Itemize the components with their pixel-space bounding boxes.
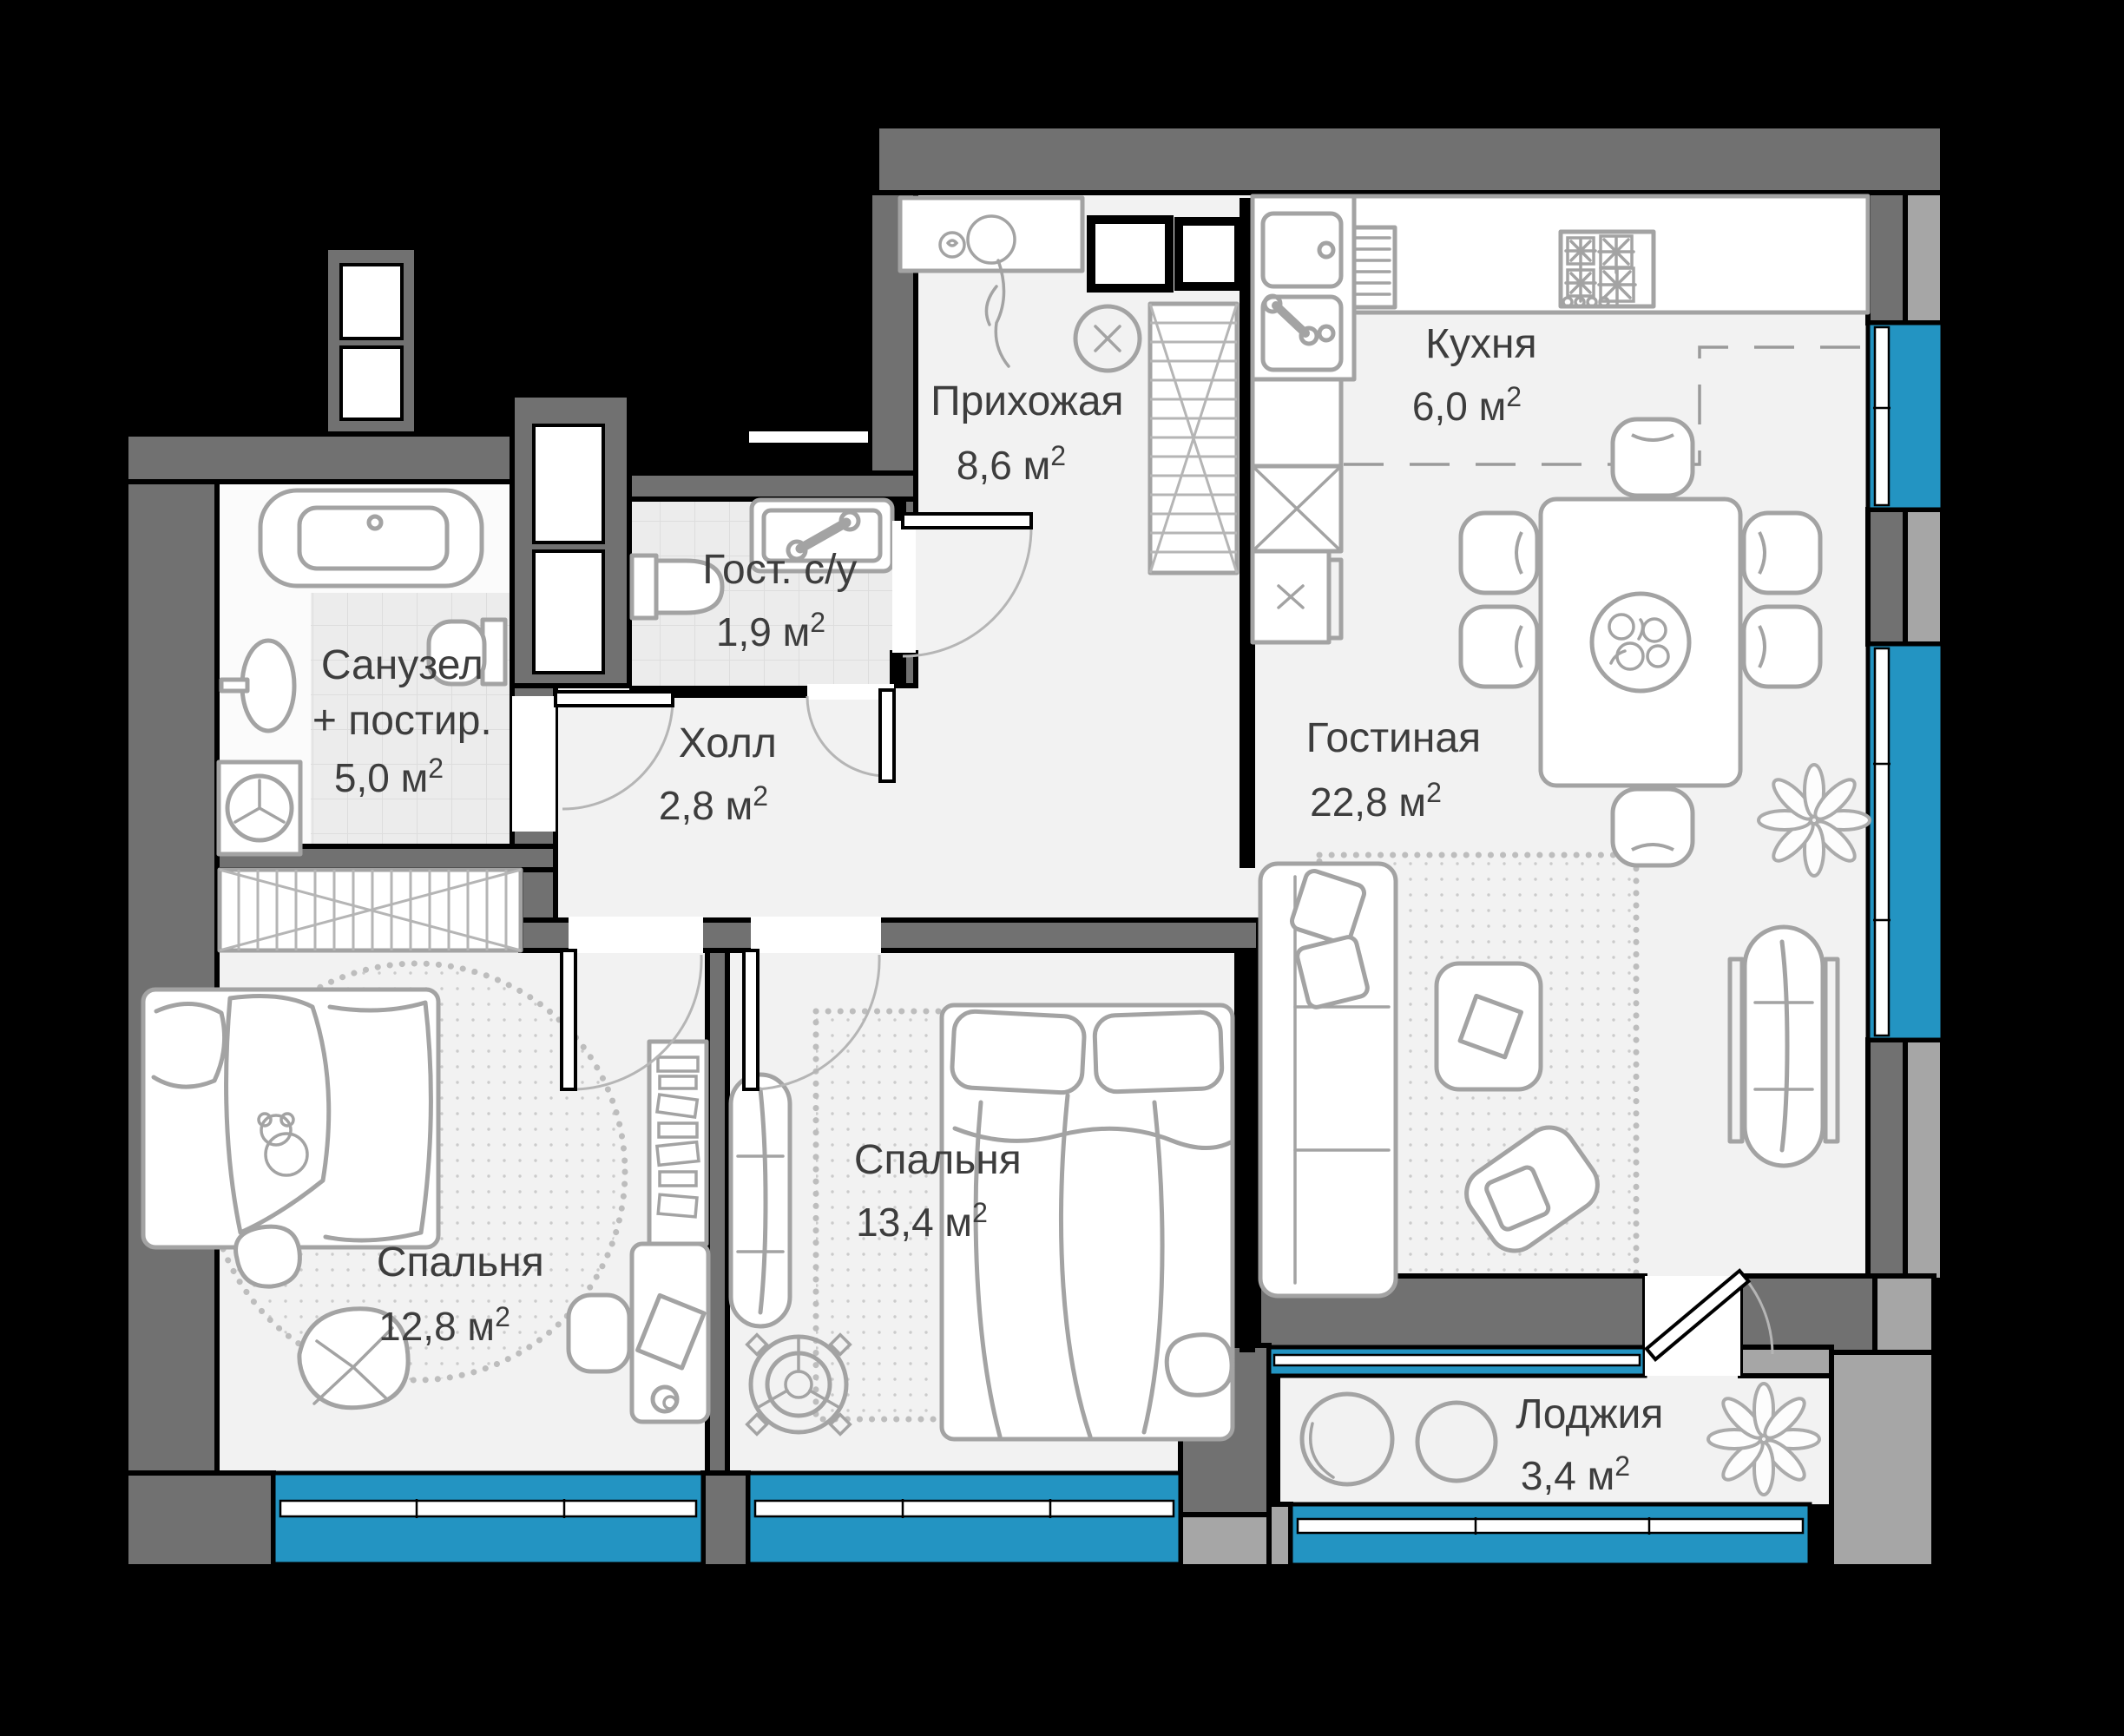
treadmill-icon (1730, 927, 1838, 1166)
bedroom-left-door-leaf (562, 950, 575, 1089)
entrance-door-leaf (903, 514, 1031, 528)
wall-top (877, 126, 1943, 193)
pouf-icon (1167, 1335, 1232, 1396)
wall-guest-wc-top (629, 473, 916, 499)
wall-bedroom-living (1240, 950, 1255, 1352)
entry-console (900, 198, 1082, 271)
bed-single (143, 990, 438, 1247)
fridge-icon (1253, 466, 1341, 551)
bedroom-middle-door-leaf (744, 950, 758, 1089)
bedroom-left-opening (569, 917, 703, 953)
stove-icon (1561, 232, 1654, 306)
pouf-icon (236, 1226, 300, 1286)
cabinet-box (1179, 221, 1239, 286)
kitchen-tall-cabinets (1253, 379, 1341, 642)
window-bedroom-middle (748, 1473, 1180, 1564)
bathroom-door-leaf (556, 692, 673, 706)
wall-left (126, 434, 217, 1473)
corridor-door-mark (749, 431, 868, 443)
dining-chair (1461, 607, 1537, 687)
entrance-opening (892, 521, 916, 653)
bookshelf (649, 1042, 707, 1244)
bathtub-icon (260, 490, 482, 586)
dining-chair (1461, 513, 1537, 593)
floor-plan-canvas: Прихожая 8,6 м2 Кухня 6,0 м2 Гост. с/у 1… (0, 0, 2124, 1736)
desk (632, 1244, 708, 1422)
wall-pier-bedrooms (703, 1473, 748, 1567)
coffee-table (1437, 963, 1541, 1089)
hallway-closet (1150, 304, 1237, 573)
bathroom-opening (512, 696, 556, 832)
guest-wc-door-leaf (880, 690, 894, 781)
dining-chair (1613, 789, 1693, 865)
washing-machine-icon (219, 762, 300, 854)
kitchen-sink-icon (1253, 196, 1354, 379)
window-loggia-bottom (1291, 1504, 1810, 1565)
desk-chair (569, 1295, 629, 1371)
wall-bathroom-top (126, 434, 512, 482)
cabinet-box (1091, 220, 1169, 288)
dining-chair (1613, 419, 1693, 496)
bedroom-left-wardrobe (220, 870, 521, 950)
floor-plan: Прихожая 8,6 м2 Кухня 6,0 м2 Гост. с/у 1… (0, 0, 2124, 1736)
window-bedroom-left (273, 1473, 703, 1564)
exercise-machine-icon (731, 1075, 790, 1326)
wall-bottom-left (126, 1473, 273, 1567)
wall-loggia-right (1831, 1352, 1934, 1567)
dining-chair (1744, 513, 1820, 593)
dining-chair (1744, 607, 1820, 687)
bedroom-middle-opening (751, 917, 881, 953)
dining-table (1541, 499, 1740, 786)
sofa (1260, 864, 1396, 1296)
